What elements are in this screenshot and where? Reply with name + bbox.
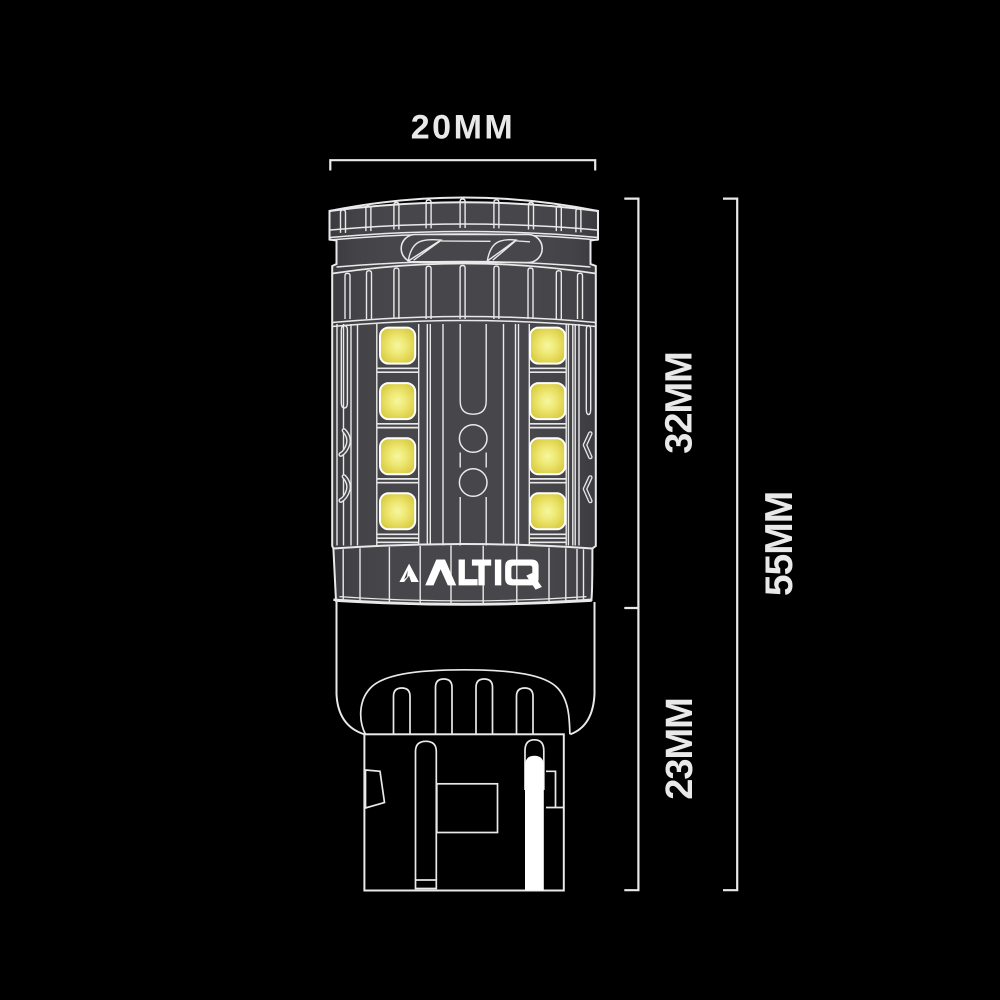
svg-text:32MM: 32MM	[659, 352, 701, 454]
svg-text:20MM: 20MM	[411, 109, 515, 147]
svg-text:55MM: 55MM	[758, 492, 801, 596]
svg-text:23MM: 23MM	[659, 698, 701, 800]
